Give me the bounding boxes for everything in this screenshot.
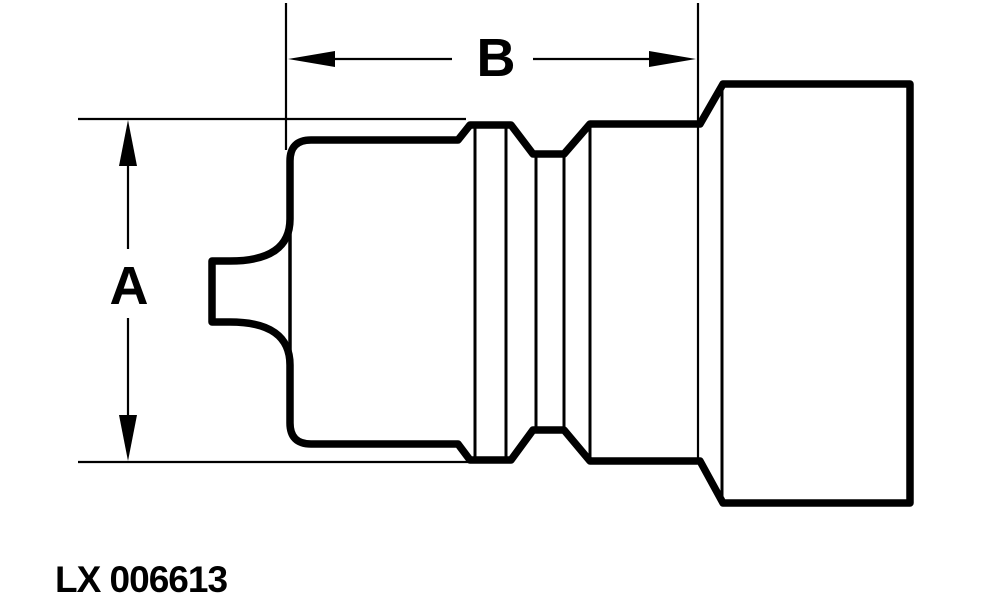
dim-b-arrow-right-icon [649, 51, 696, 67]
dim-a-label: A [110, 256, 149, 316]
dimension-b: B [288, 28, 696, 88]
figure-page: B A LX 006613 [0, 0, 996, 598]
part-outline [212, 84, 910, 503]
dim-a-arrow-down-icon [119, 415, 137, 461]
coupling-diagram: B A LX 006613 [0, 0, 996, 598]
dim-b-arrow-left-icon [288, 51, 335, 67]
extension-lines [78, 3, 698, 462]
figure-id-label: LX 006613 [55, 559, 227, 598]
dim-b-label: B [477, 28, 516, 88]
dimension-a: A [110, 120, 149, 461]
dim-a-arrow-up-icon [119, 120, 137, 166]
part-edge-lines [290, 87, 722, 500]
